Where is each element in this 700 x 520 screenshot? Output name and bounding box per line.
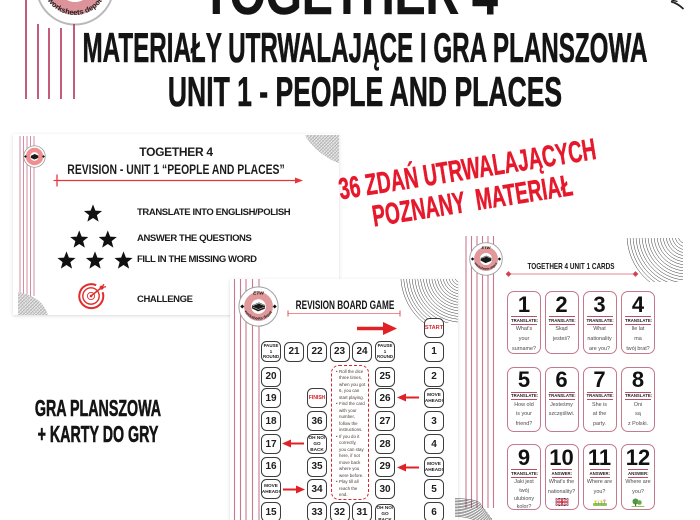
svg-text:ETW: ETW: [253, 290, 264, 296]
svg-text:ETW: ETW: [482, 245, 492, 250]
